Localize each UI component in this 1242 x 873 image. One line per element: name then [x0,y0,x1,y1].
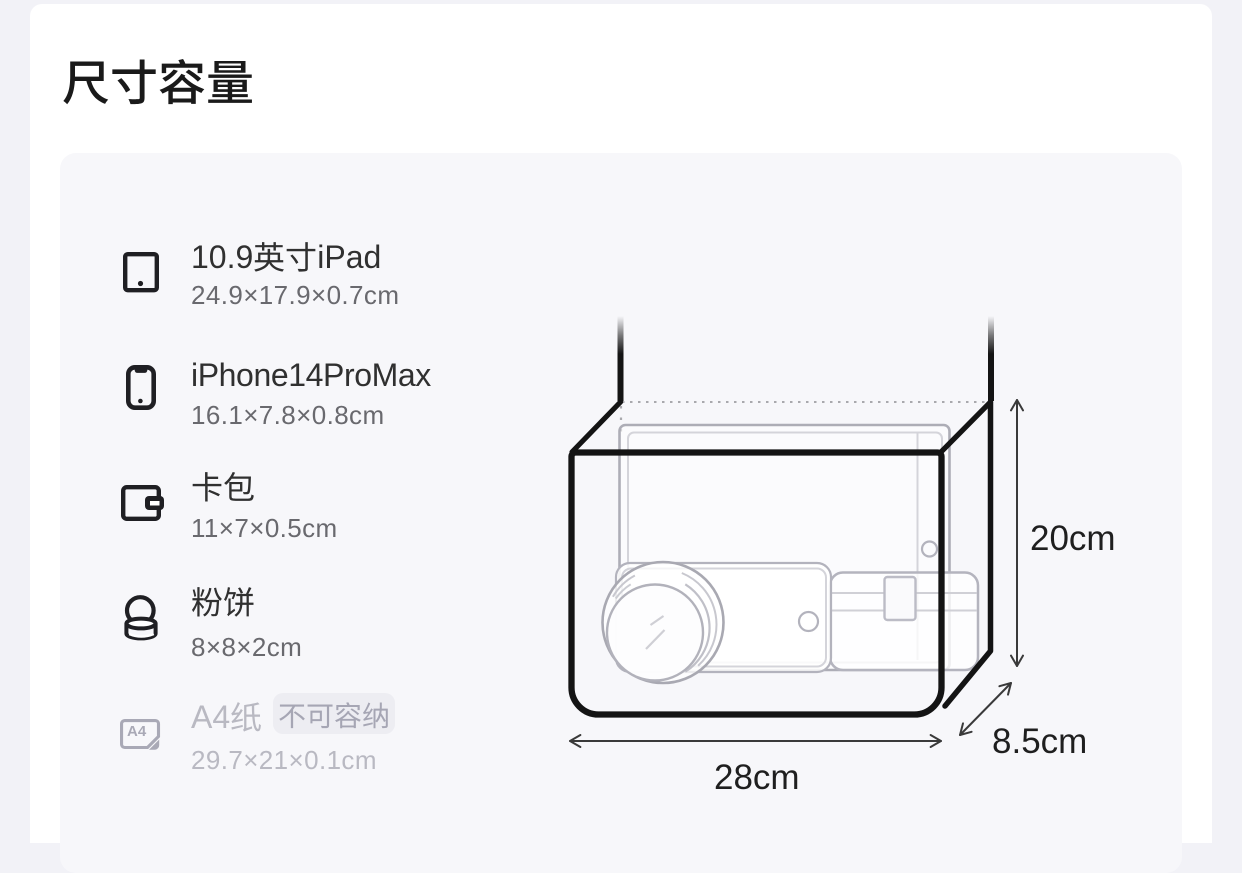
svg-text:A4: A4 [127,723,147,740]
